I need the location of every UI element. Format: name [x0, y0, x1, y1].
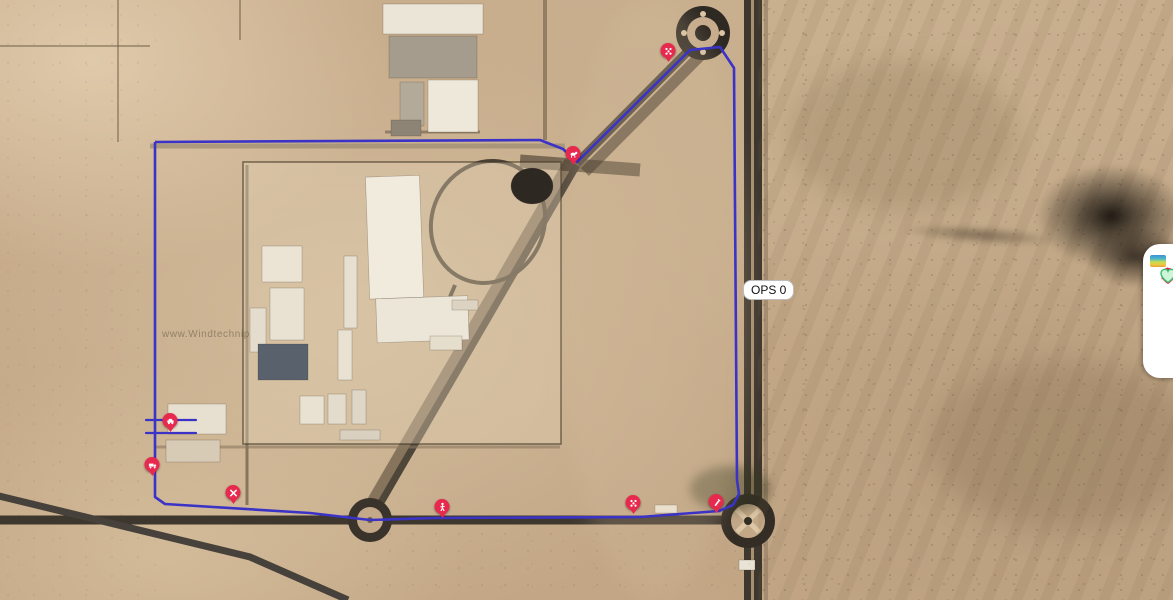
marker-southwest-corner[interactable]: [226, 485, 241, 500]
pen-icon: [711, 497, 721, 507]
crossed-tools-icon: [228, 488, 238, 498]
roundabout-south: [721, 494, 775, 548]
heart-icon: [1159, 267, 1173, 284]
map-view[interactable]: OPS 0 www.Windtechnip 91: [0, 0, 1173, 600]
pond: [511, 168, 553, 204]
marker-south-roundabout[interactable]: [709, 494, 724, 509]
marker-southeast-road[interactable]: [626, 495, 641, 510]
car-icon: [165, 416, 175, 426]
marker-north-roundabout[interactable]: [661, 43, 676, 58]
marker-west-site[interactable]: [163, 413, 178, 428]
industrial-complex: [243, 4, 561, 444]
cluster-icon: [628, 498, 638, 508]
cluster-icon: [663, 46, 673, 56]
truck-icon: [147, 460, 157, 470]
imagery-watermark: www.Windtechnip: [162, 329, 250, 340]
marker-south-road[interactable]: [435, 499, 450, 514]
marker-route-corner[interactable]: [566, 146, 581, 161]
pedestrian-icon: [437, 502, 447, 512]
field-lines: [0, 0, 240, 142]
animal-icon: [568, 149, 578, 159]
marker-west-road[interactable]: [145, 457, 160, 472]
map-tools-panel: 91: [1143, 244, 1173, 378]
route-label[interactable]: OPS 0: [743, 280, 794, 300]
panel-health-button[interactable]: [1149, 252, 1169, 282]
terrain-layer: [0, 0, 1173, 600]
